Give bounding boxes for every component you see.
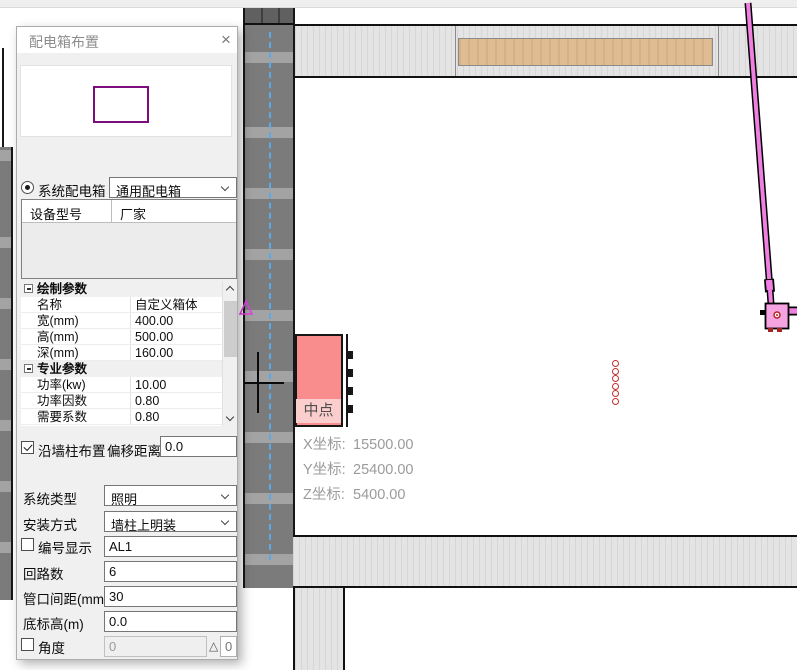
cad-canvas[interactable]: 中点 X坐标: 15500.00 Y坐标: 25400.00 Z坐标: 5400… — [0, 0, 797, 670]
snap-triangle-marker — [240, 301, 252, 314]
chevron-down-icon — [221, 491, 229, 499]
angle-input — [104, 636, 207, 657]
system-box-combo[interactable]: 通用配电箱 — [109, 177, 237, 198]
box-face-line — [346, 334, 348, 427]
box-outline-graphic — [93, 86, 149, 123]
coord-y: Y坐标: 25400.00 — [303, 458, 413, 483]
system-type-label: 系统类型 — [23, 488, 77, 508]
device-table[interactable]: 设备型号 厂家 — [21, 199, 237, 279]
scroll-down-icon[interactable] — [226, 413, 234, 421]
system-type-combo[interactable]: 照明 — [104, 485, 237, 506]
conduit-port — [348, 387, 353, 395]
property-group-row[interactable]: 绘制参数 — [21, 281, 222, 297]
coord-x: X坐标: 15500.00 — [303, 433, 413, 458]
conduit-port — [348, 369, 353, 377]
conduit-port — [348, 351, 353, 359]
crosshair-cursor — [244, 382, 284, 384]
dialog-title: 配电箱布置 — [29, 32, 99, 52]
angle-checkbox[interactable] — [21, 638, 34, 651]
coord-z: Z坐标: 5400.00 — [303, 483, 413, 508]
system-box-radio[interactable] — [21, 181, 34, 194]
terminal-dot — [612, 398, 619, 405]
column-header-model: 设备型号 — [22, 200, 112, 222]
property-grid[interactable]: 绘制参数 名称 自定义箱体 宽(mm) 400.00 高(mm) 500.00 … — [21, 281, 237, 426]
collapse-icon[interactable] — [24, 364, 33, 373]
property-row[interactable]: 名称 自定义箱体 — [21, 297, 222, 313]
along-wall-label: 沿墙柱布置 — [38, 440, 106, 460]
terminal-dot — [612, 360, 619, 367]
column-header-vendor: 厂家 — [112, 200, 146, 222]
property-row[interactable]: 深(mm) 160.00 — [21, 345, 222, 361]
property-row[interactable]: 功率(kw) 10.00 — [21, 377, 222, 393]
offset-label: 偏移距离: — [107, 440, 165, 460]
device-table-header: 设备型号 厂家 — [22, 200, 236, 223]
terminal-dot — [612, 368, 619, 375]
circuit-count-label: 回路数 — [23, 563, 64, 583]
angle-step-input[interactable] — [220, 636, 237, 657]
scrollbar-thumb[interactable] — [224, 301, 237, 357]
system-box-radio-label: 系统配电箱 — [38, 180, 106, 200]
base-elevation-input[interactable] — [104, 611, 237, 632]
property-row[interactable]: 宽(mm) 400.00 — [21, 313, 222, 329]
install-mode-label: 安装方式 — [23, 514, 77, 534]
terminal-dot — [612, 375, 619, 382]
number-display-checkbox[interactable] — [21, 538, 34, 551]
conduit-port — [348, 405, 353, 413]
property-row[interactable]: 功率因数 0.80 — [21, 393, 222, 409]
property-row[interactable]: 高(mm) 500.00 — [21, 329, 222, 345]
port-spacing-label: 管口间距(mm) — [23, 588, 108, 608]
chevron-down-icon — [221, 183, 229, 191]
terminal-dot — [612, 383, 619, 390]
midpoint-snap-tooltip: 中点 — [296, 399, 341, 423]
conduit-line[interactable] — [748, 3, 770, 290]
angle-label: 角度 — [38, 637, 65, 657]
collapse-icon[interactable] — [24, 284, 33, 293]
number-display-label: 编号显示 — [38, 537, 92, 557]
property-group-row[interactable]: 专业参数 — [21, 361, 222, 377]
port-spacing-input[interactable] — [104, 586, 237, 607]
terminal-dot — [612, 390, 619, 397]
property-row[interactable]: 需要系数 0.80 — [21, 409, 222, 425]
close-icon[interactable]: × — [215, 29, 237, 51]
install-mode-combo[interactable]: 墙柱上明装 — [104, 511, 237, 532]
coordinate-readout: X坐标: 15500.00 Y坐标: 25400.00 Z坐标: 5400.00 — [303, 433, 413, 508]
circuit-count-input[interactable] — [104, 561, 237, 582]
scrollbar[interactable] — [222, 281, 237, 426]
box-shape-preview — [20, 65, 232, 137]
distribution-box-dialog: 配电箱布置 × 系统配电箱 通用配电箱 自定义配电箱 PZ30-10 >> 设备… — [16, 26, 238, 660]
dialog-titlebar[interactable]: 配电箱布置 × — [17, 27, 237, 53]
base-elevation-label: 底标高(m) — [23, 613, 84, 633]
angle-delta-icon: △ — [209, 639, 218, 653]
scroll-up-icon[interactable] — [226, 286, 234, 294]
offset-input[interactable] — [160, 436, 237, 457]
number-input[interactable] — [104, 536, 237, 557]
along-wall-checkbox[interactable] — [21, 441, 34, 454]
chevron-down-icon — [221, 517, 229, 525]
